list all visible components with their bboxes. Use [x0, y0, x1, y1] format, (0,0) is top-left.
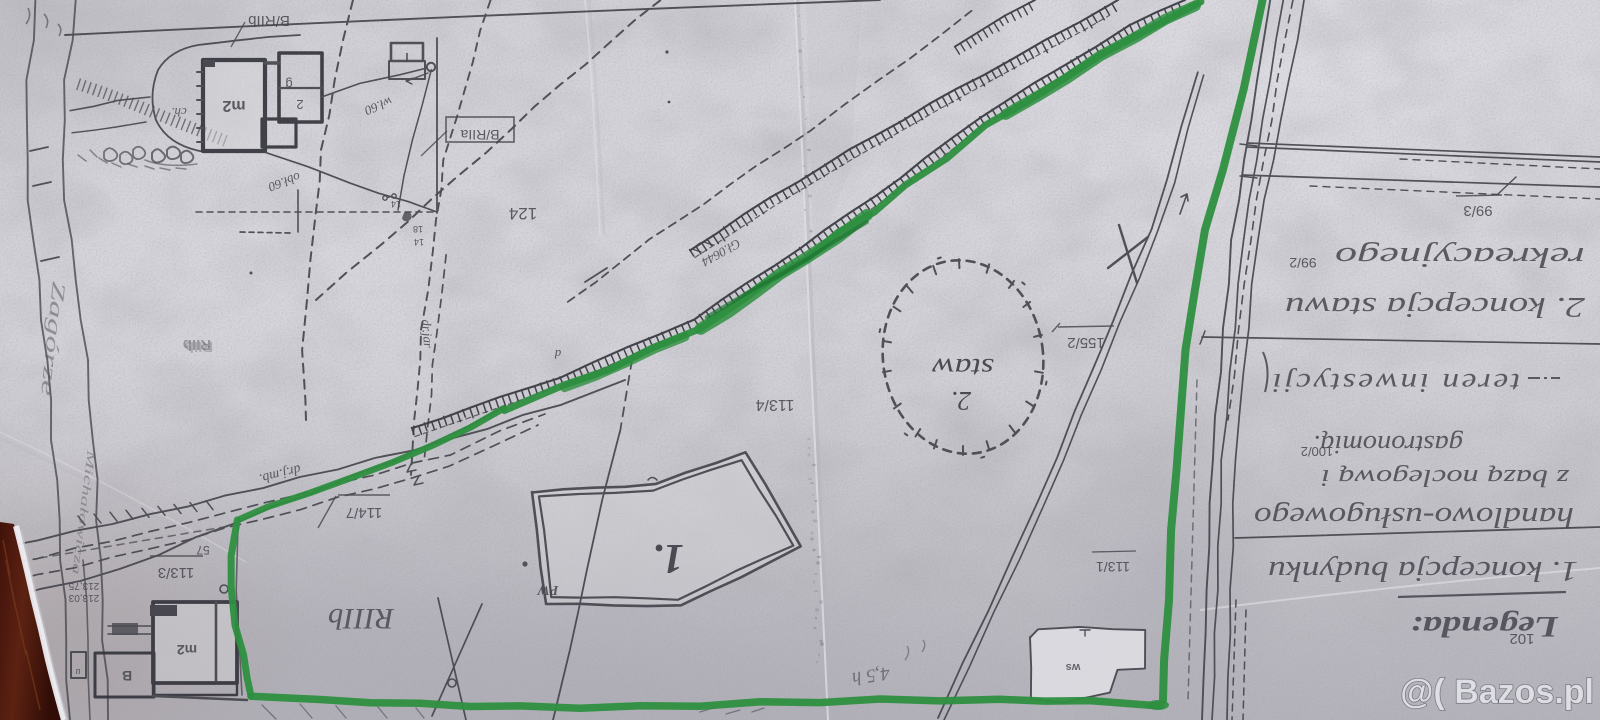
- svg-text:1.: 1.: [652, 535, 684, 581]
- svg-text:113/1: 113/1: [1096, 559, 1130, 575]
- svg-text:handlowo-usługowego: handlowo-usługowego: [1254, 501, 1574, 533]
- svg-text:ws: ws: [1066, 661, 1082, 673]
- svg-text:rekreacyjnego: rekreacyjnego: [1335, 241, 1585, 273]
- svg-text:PW: PW: [536, 582, 559, 597]
- svg-text:2.: 2.: [951, 386, 971, 416]
- svg-text:2: 2: [296, 97, 303, 112]
- svg-text:d: d: [554, 347, 561, 362]
- svg-text:14: 14: [414, 237, 424, 247]
- svg-text:B/RIIa: B/RIIa: [460, 127, 499, 143]
- svg-text:RIIb: RIIb: [185, 338, 213, 355]
- svg-text:18: 18: [413, 224, 423, 234]
- svg-text:ch.: ch.: [171, 105, 187, 120]
- svg-text:I: I: [405, 50, 408, 64]
- svg-text:gastronomią.: gastronomią.: [1313, 430, 1463, 459]
- svg-text:99/2: 99/2: [1289, 255, 1316, 271]
- svg-text:@( Bazos.pl: @( Bazos.pl: [1400, 673, 1594, 711]
- svg-text:m2: m2: [222, 97, 245, 114]
- svg-text:113/3: 113/3: [158, 564, 194, 581]
- svg-text:B/RIIb: B/RIIb: [248, 12, 290, 29]
- svg-text:m2: m2: [177, 642, 197, 658]
- svg-text:2. koncepcja stawu: 2. koncepcja stawu: [1285, 291, 1585, 323]
- svg-text:213,75: 213,75: [68, 580, 99, 591]
- svg-text:99/3: 99/3: [1463, 202, 1492, 219]
- svg-text:g: g: [285, 77, 292, 92]
- svg-text:155/2: 155/2: [1067, 334, 1105, 351]
- svg-text:staw: staw: [932, 353, 994, 383]
- svg-text:RIIIb: RIIIb: [328, 602, 395, 635]
- svg-text:z bazą noclegową i: z bazą noclegową i: [1321, 464, 1570, 490]
- svg-text:57: 57: [196, 543, 210, 557]
- svg-text:14: 14: [391, 199, 401, 209]
- svg-text:114/7: 114/7: [346, 504, 382, 521]
- svg-text:213,03: 213,03: [68, 592, 99, 603]
- svg-text:113/4: 113/4: [755, 396, 794, 413]
- svg-text:u: u: [76, 666, 81, 677]
- svg-text:teren inwestycji: teren inwestycji: [1270, 368, 1520, 398]
- svg-text:B: B: [122, 668, 132, 684]
- svg-text:Legenda:: Legenda:: [1410, 610, 1559, 643]
- svg-text:dr.jar: dr.jar: [419, 319, 437, 350]
- svg-text:1. koncepcja budynku: 1. koncepcja budynku: [1268, 555, 1578, 587]
- svg-text:124: 124: [509, 204, 537, 223]
